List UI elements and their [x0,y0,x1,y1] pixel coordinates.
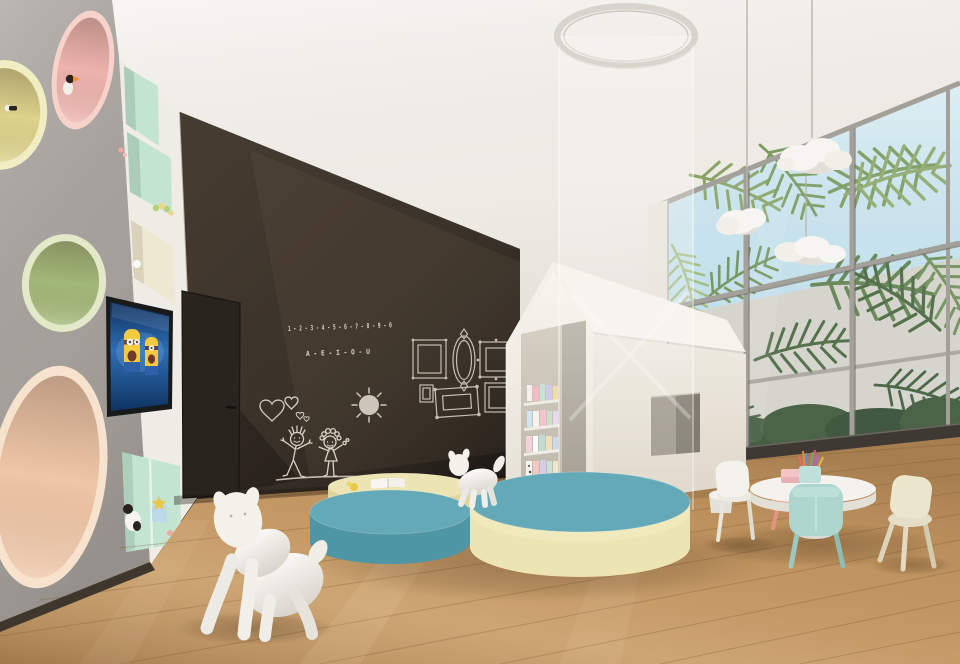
pouf-tall-cream [470,472,690,577]
pink-box [781,469,801,483]
wall-tv [106,296,173,417]
pink-toy [118,147,123,152]
minion-right [145,337,158,375]
pouf-low-blue [310,490,470,564]
ball-toy [133,260,141,268]
sheer-cylinder [558,7,694,540]
playroom-rendering: 1 - 2 - 3 - 4 - 5 - 6 - 7 - 8 - 9 - 0 A … [0,0,960,664]
pouf-group [310,472,690,577]
minion-left [124,329,140,372]
playroom-door [182,291,240,498]
chalk-sun [352,388,386,422]
